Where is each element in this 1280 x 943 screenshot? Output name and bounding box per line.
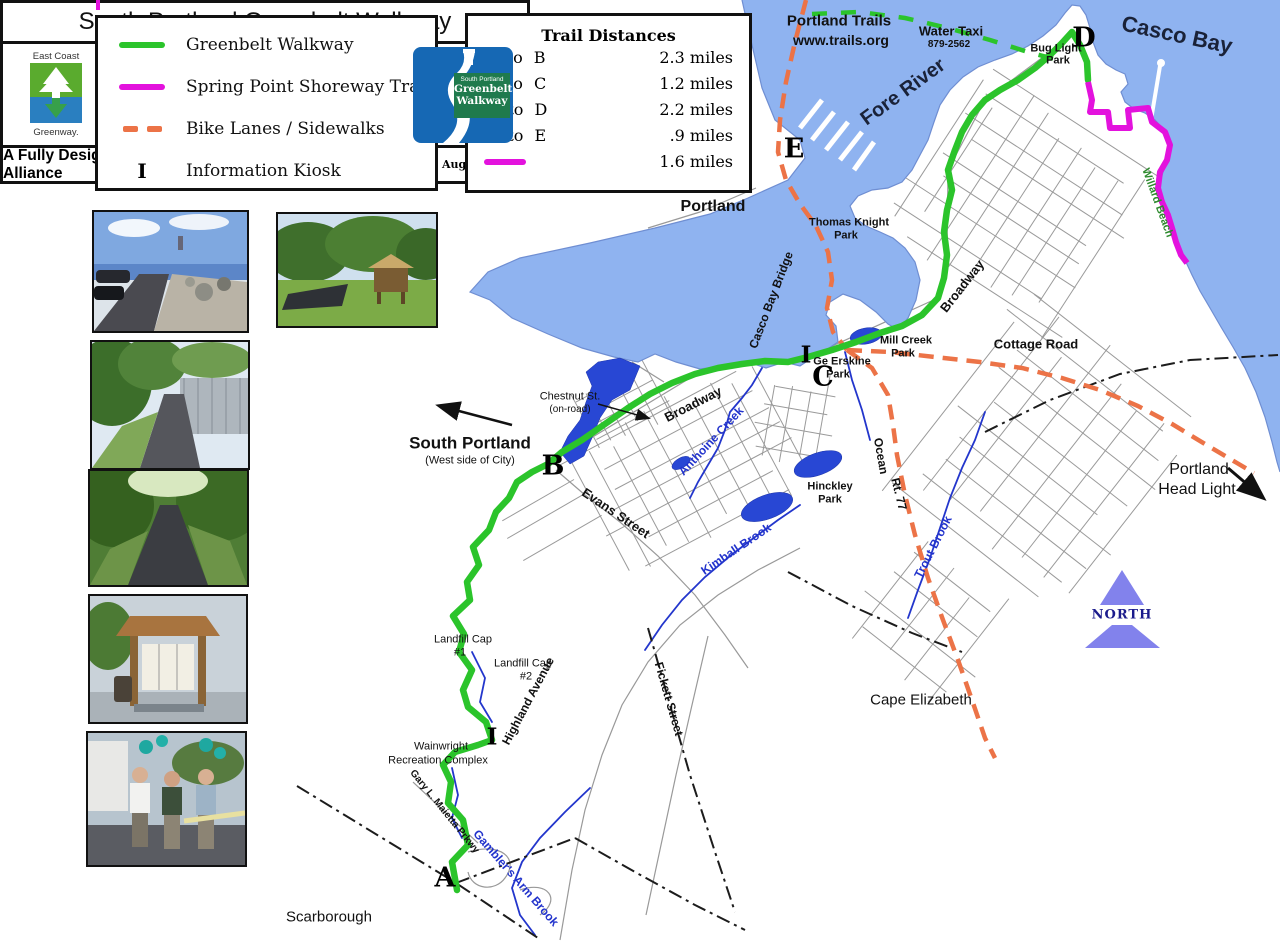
label-west-side: (West side of City) (425, 456, 515, 467)
label-portland-head-2: Head Light (1158, 482, 1235, 498)
trail-distances-title: Trail Distances (468, 26, 749, 45)
label-portland-trails: Portland Trails (787, 14, 891, 29)
legend-label: Greenbelt Walkway (186, 35, 354, 55)
legend-row-bike-lanes: Bike Lanes / Sidewalks (98, 110, 435, 148)
label-wainwright-1: Wainwright (414, 742, 468, 753)
cottage-road-route (847, 350, 1254, 473)
greenbelt-walkway-logo: South Portland Greenbelt Walkway (413, 47, 513, 143)
kiosk-letter-swatch: I (137, 159, 146, 183)
label-hinckley-2: Park (818, 495, 842, 506)
photo-ribbon-cutting (86, 731, 247, 867)
label-chestnut-1: Chestnut St. (540, 392, 601, 403)
map-page: Portland Trails www.trails.org Water Tax… (0, 0, 1280, 943)
label-cottage-road: Cottage Road (994, 338, 1079, 351)
label-south-portland: South Portland (409, 435, 531, 452)
marker-a: A (435, 865, 456, 892)
hinckley-pond-1 (791, 445, 846, 483)
legend-row-shoreway: Spring Point Shoreway Trail (98, 68, 435, 106)
label-hinckley-1: Hinckley (807, 482, 852, 493)
label-thomas-knight-2: Park (834, 231, 858, 242)
label-landfill-1-num: #1 (454, 648, 466, 659)
label-wainwright-2: Recreation Complex (388, 756, 488, 767)
label-north: NORTH (1092, 608, 1153, 623)
label-scarborough: Scarborough (286, 910, 372, 925)
legend-row-greenbelt: Greenbelt Walkway (98, 26, 435, 64)
shoreway-line-swatch (119, 84, 165, 90)
label-cape-elizabeth: Cape Elizabeth (870, 693, 972, 708)
marker-d: D (1072, 25, 1095, 52)
label-portland: Portland (681, 199, 746, 215)
label-trails-url: www.trails.org (793, 33, 889, 47)
legend-box: Greenbelt Walkway Spring Point Shoreway … (95, 15, 438, 191)
label-bug-light-2: Park (1046, 56, 1070, 67)
greenbelt-line-swatch (119, 42, 165, 48)
label-chestnut-2: (on-road) (549, 405, 590, 415)
marker-b: B (542, 453, 565, 480)
marker-kiosk-wainwright: I (487, 726, 498, 749)
bike-dashes-swatch (123, 126, 162, 132)
legend-label: Information Kiosk (186, 161, 341, 181)
legend-label: Bike Lanes / Sidewalks (186, 119, 385, 139)
label-landfill-cap-1: Landfill Cap (434, 635, 492, 646)
photo-shoreline-path (92, 210, 249, 333)
label-landfill-2-num: #2 (520, 672, 532, 683)
legend-label: Spring Point Shoreway Trail (186, 77, 430, 97)
shoreway-line-swatch (484, 159, 526, 165)
legend-row-kiosk: I Information Kiosk (98, 152, 435, 190)
distance-row-shoreway: 1.6 miles (468, 149, 749, 175)
chestnut-st-arrow (598, 404, 648, 418)
label-landfill-cap-2: Landfill Cap (494, 659, 552, 670)
label-mill-creek-1: Mill Creek (880, 336, 932, 347)
photo-fence-trail (90, 340, 250, 470)
greenbelt-logo-text: South Portland Greenbelt Walkway (454, 73, 510, 118)
label-mill-creek-2: Park (891, 349, 915, 360)
label-water-taxi-phone: 879-2562 (928, 40, 970, 50)
photo-wooded-trail (88, 469, 249, 587)
marker-kiosk-mill-creek: I (801, 344, 812, 367)
label-portland-head-1: Portland (1169, 462, 1229, 478)
marker-e: E (784, 136, 805, 163)
photo-park-kiosk (276, 212, 438, 328)
south-portland-arrow (440, 406, 512, 425)
marker-c: C (812, 364, 834, 391)
photo-info-kiosk (88, 594, 248, 724)
label-thomas-knight-1: Thomas Knight (809, 218, 889, 229)
label-water-taxi: Water Taxi (919, 25, 983, 38)
stray-magenta-mark (96, 0, 100, 10)
